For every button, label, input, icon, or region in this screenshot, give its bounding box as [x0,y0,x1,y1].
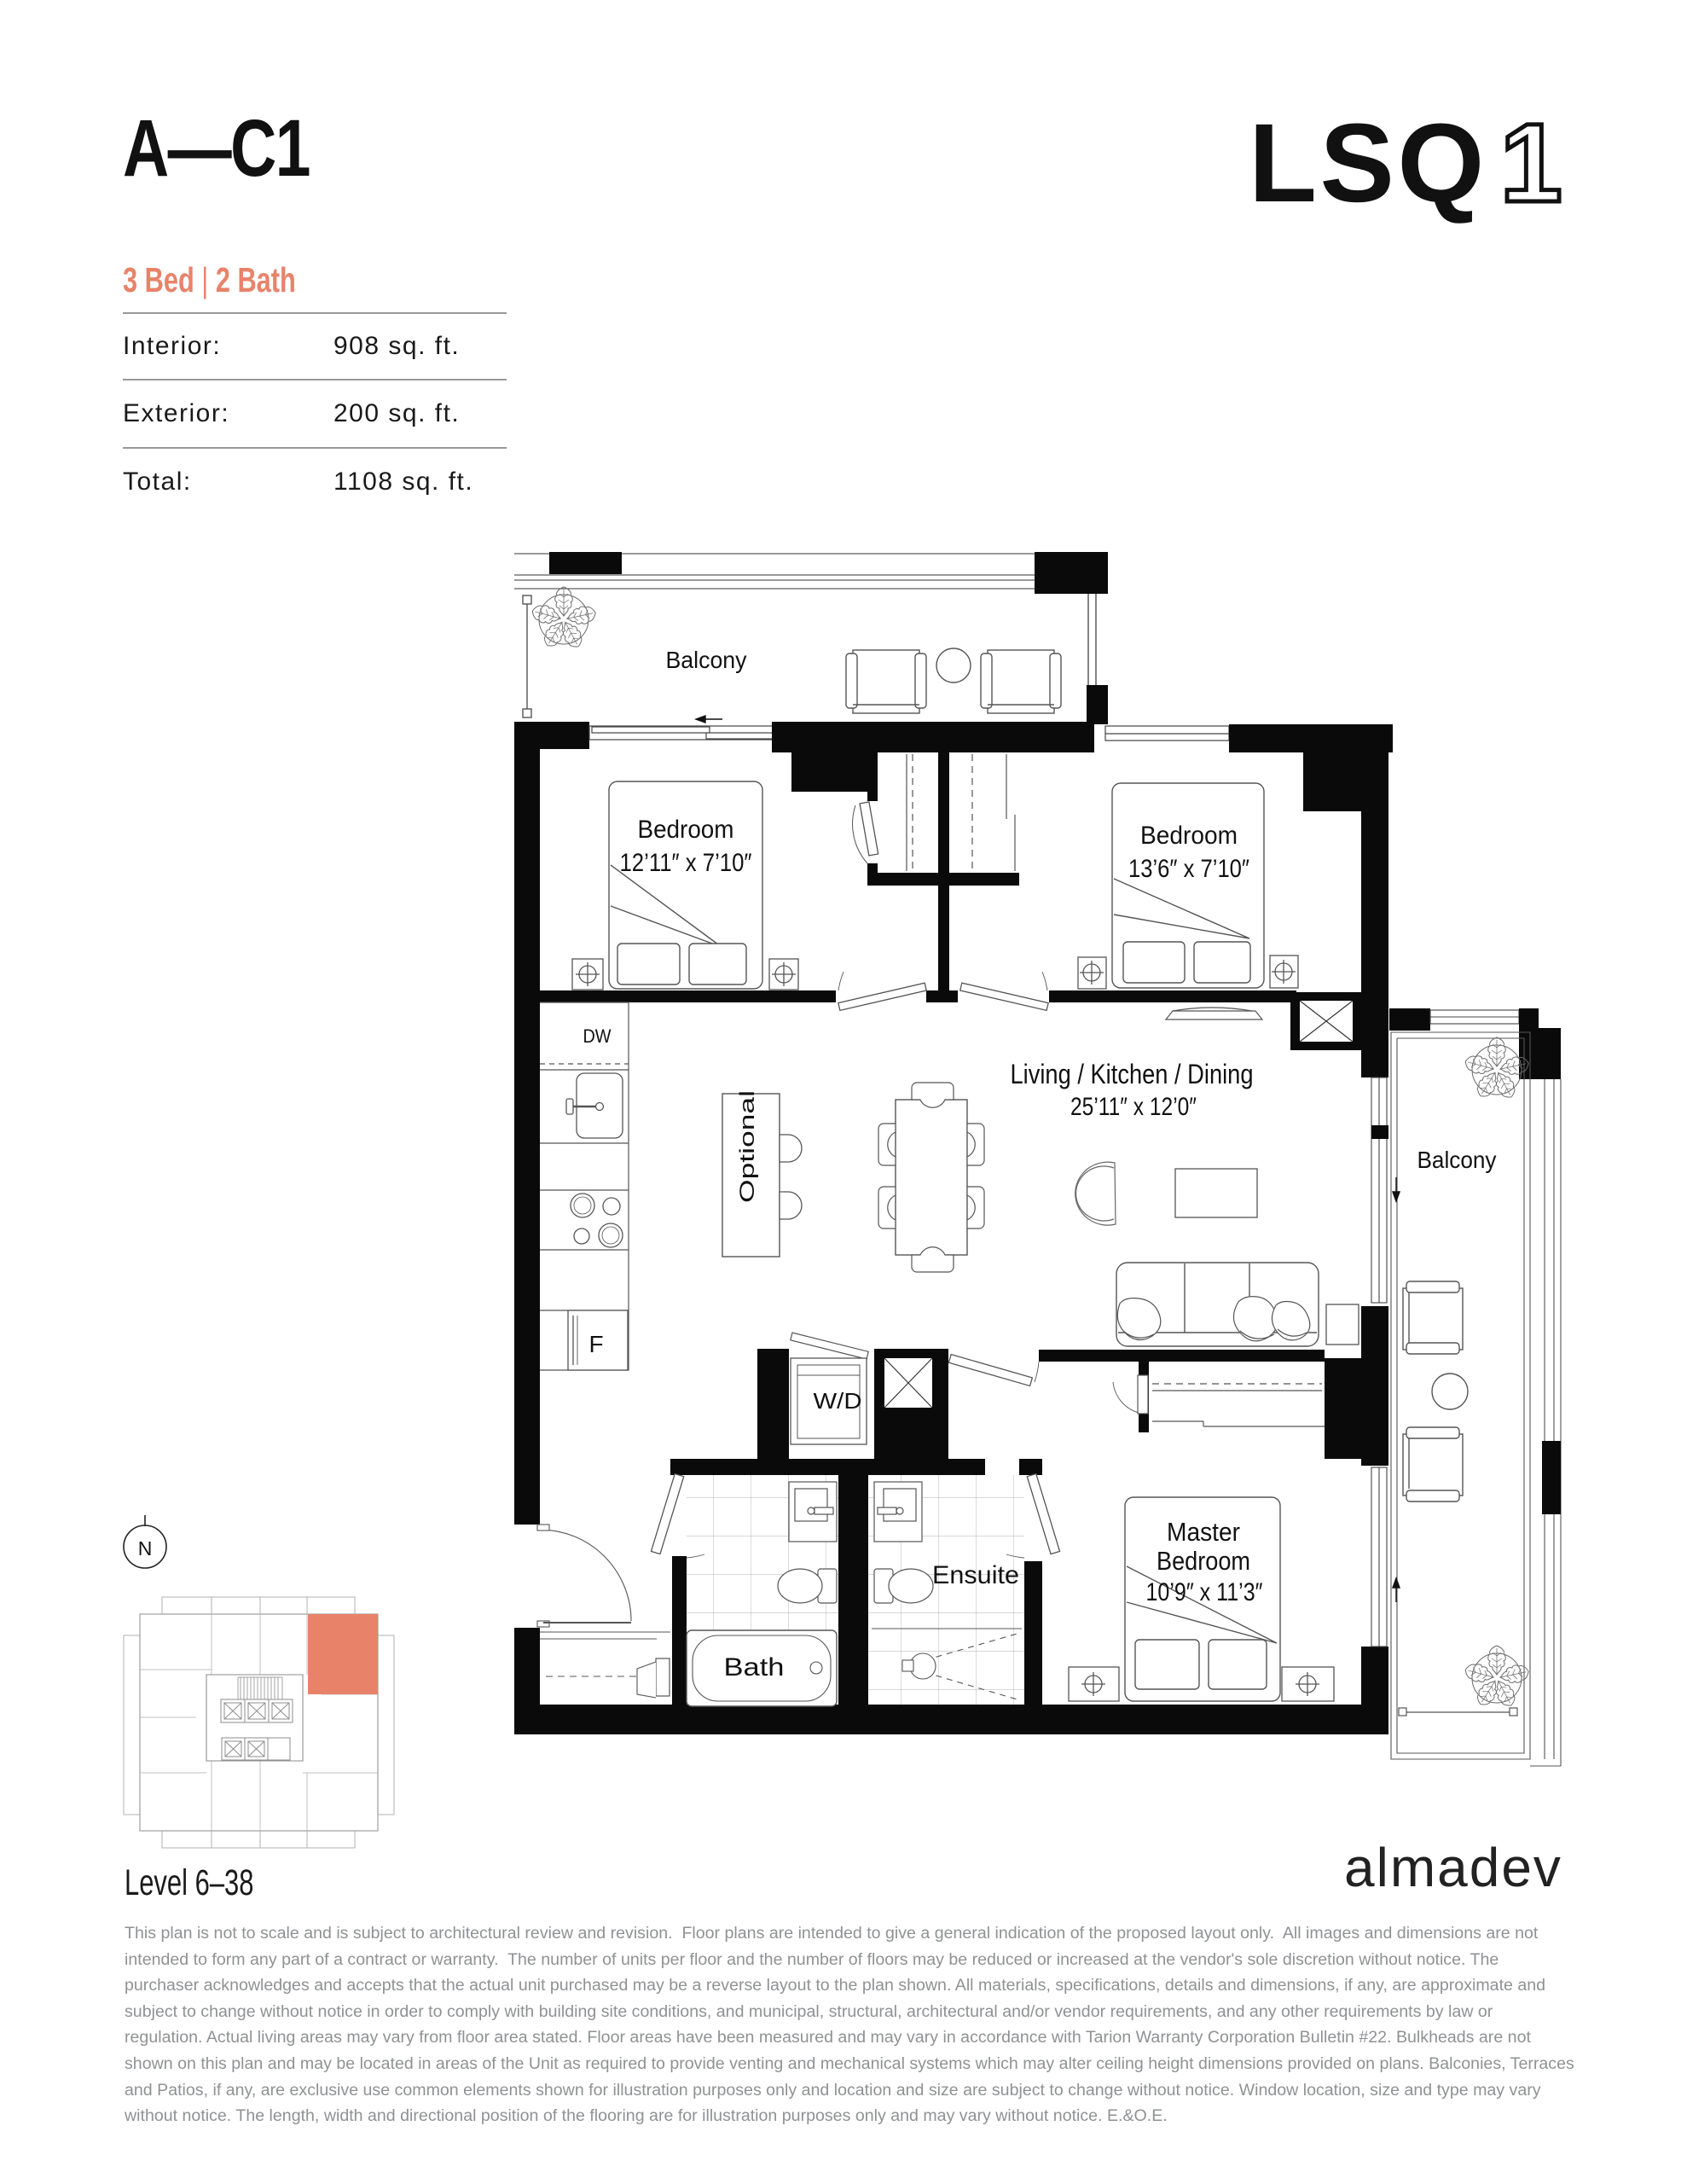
svg-text:12’11″ x 7’10″: 12’11″ x 7’10″ [620,849,752,877]
svg-text:Bedroom: Bedroom [1140,822,1238,850]
svg-text:Living / Kitchen / Dining: Living / Kitchen / Dining [1011,1059,1254,1089]
svg-text:Balcony: Balcony [666,647,747,673]
svg-text:F: F [588,1331,603,1357]
svg-text:13’6″ x 7’10″: 13’6″ x 7’10″ [1128,855,1249,883]
svg-text:Bath: Bath [724,1653,785,1682]
svg-text:W/D: W/D [814,1388,862,1414]
svg-text:Optional: Optional [736,1090,759,1203]
svg-text:N: N [138,1537,153,1560]
svg-text:Balcony: Balcony [1417,1147,1497,1173]
svg-text:25’11″ x 12’0″: 25’11″ x 12’0″ [1070,1093,1197,1121]
svg-text:Bedroom: Bedroom [1157,1546,1250,1576]
svg-text:Ensuite: Ensuite [932,1561,1019,1589]
svg-text:Bedroom: Bedroom [638,816,734,844]
svg-text:Master: Master [1167,1517,1240,1547]
svg-text:10’9″ x 11’3″: 10’9″ x 11’3″ [1146,1578,1263,1606]
svg-text:DW: DW [583,1025,612,1047]
